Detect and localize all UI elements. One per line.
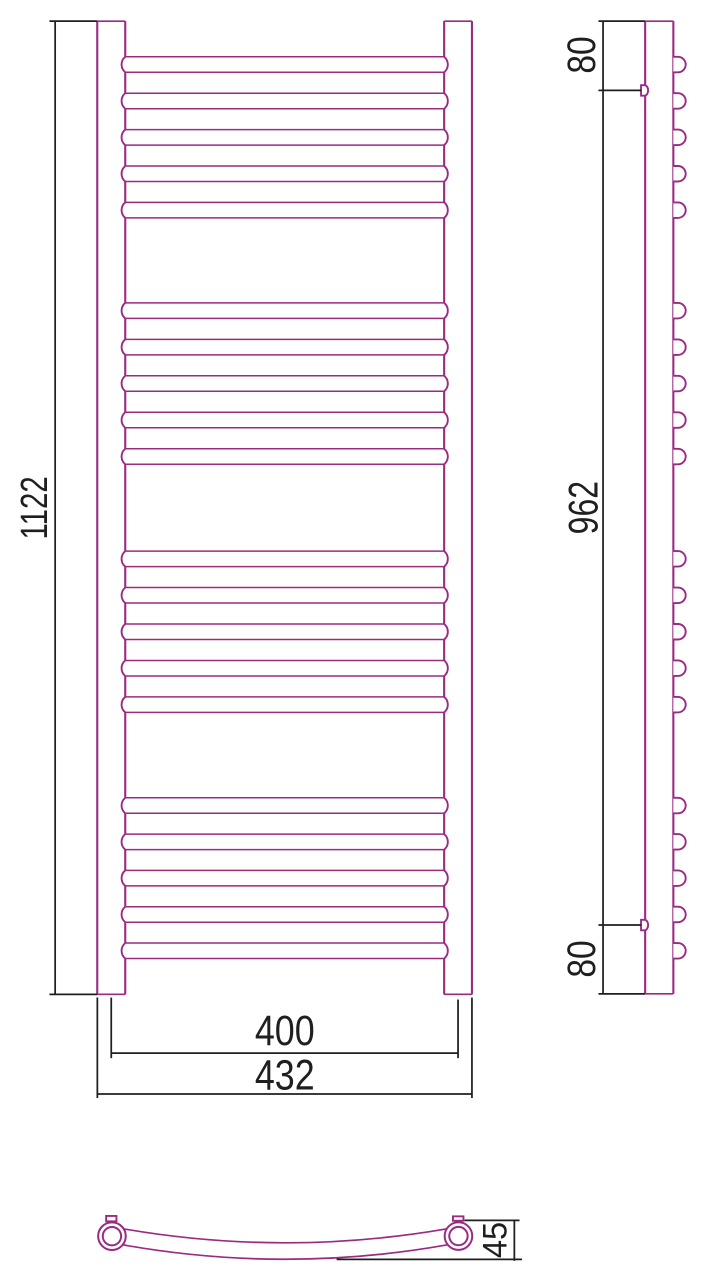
svg-text:962: 962 (559, 481, 606, 534)
svg-text:80: 80 (559, 940, 603, 977)
svg-text:45: 45 (477, 1222, 515, 1258)
svg-text:400: 400 (255, 1008, 315, 1054)
svg-text:80: 80 (559, 36, 603, 73)
svg-text:432: 432 (255, 1053, 315, 1099)
svg-text:1122: 1122 (13, 476, 56, 539)
